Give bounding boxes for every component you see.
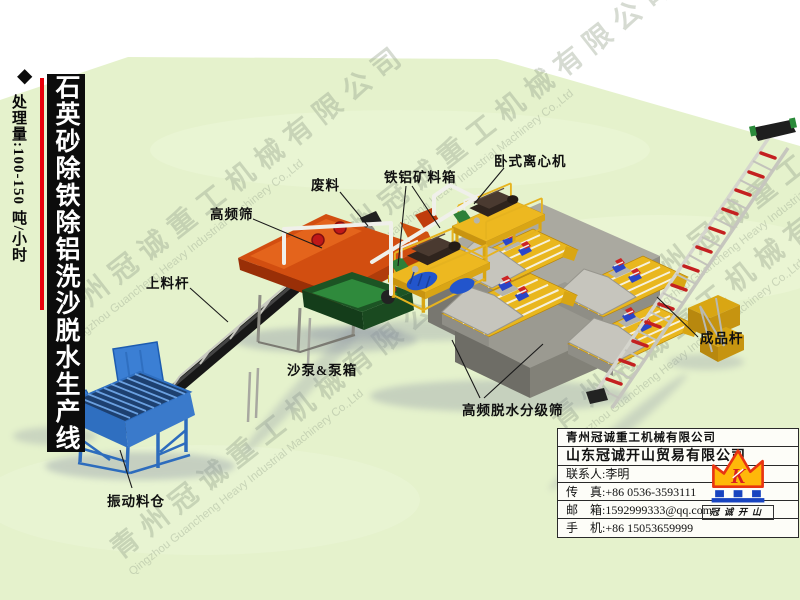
- red-accent-line: [40, 78, 44, 310]
- label-product-conveyor: 成品杆: [700, 327, 744, 347]
- company-name-main: 青州冠诚重工机械有限公司: [558, 429, 798, 447]
- fax-label: 传 真:: [566, 484, 605, 500]
- label-ore-box: 铁铝矿料箱: [384, 166, 457, 186]
- label-feeding-conveyor: 上料杆: [146, 272, 190, 292]
- label-dewatering-screen: 高频脱水分级筛: [462, 399, 564, 419]
- contact-value: 李明: [605, 467, 629, 481]
- contact-label: 联系人:: [566, 467, 605, 482]
- label-centrifuge: 卧式离心机: [494, 150, 567, 170]
- email-value: 1592999333@qq.com: [605, 503, 712, 517]
- label-sand-pump: 沙泵&泵箱: [287, 359, 357, 379]
- company-info-box: 青州冠诚重工机械有限公司 山东冠诚开山贸易有限公司 联系人:李明 传 真:+86…: [557, 428, 799, 538]
- diamond-icon: ◆: [17, 66, 32, 86]
- crown-logo-icon: K: [706, 448, 770, 506]
- mobile-label: 手 机:: [566, 520, 605, 536]
- mobile-value: +86 15053659999: [605, 521, 693, 535]
- production-line-poster: 青州冠诚重工机械有限公司Qingzhou Guancheng Heavy Ind…: [0, 0, 800, 600]
- label-vibrating-hopper: 振动料仓: [107, 490, 165, 510]
- fax-value: +86 0536-3593111: [605, 485, 696, 499]
- logo-caption: 冠诚开山: [702, 505, 774, 520]
- label-waste: 废料: [311, 174, 340, 194]
- page-title: 石英砂除铁除铝洗沙脱水生产线: [47, 74, 85, 452]
- label-high-freq-screen: 高频筛: [210, 203, 254, 223]
- capacity-text: 处理量:100-150 吨/小时: [8, 94, 29, 334]
- mobile-row: 手 机:+86 15053659999: [558, 519, 798, 536]
- email-label: 邮 箱:: [566, 502, 605, 518]
- logo-letter: K: [730, 464, 747, 488]
